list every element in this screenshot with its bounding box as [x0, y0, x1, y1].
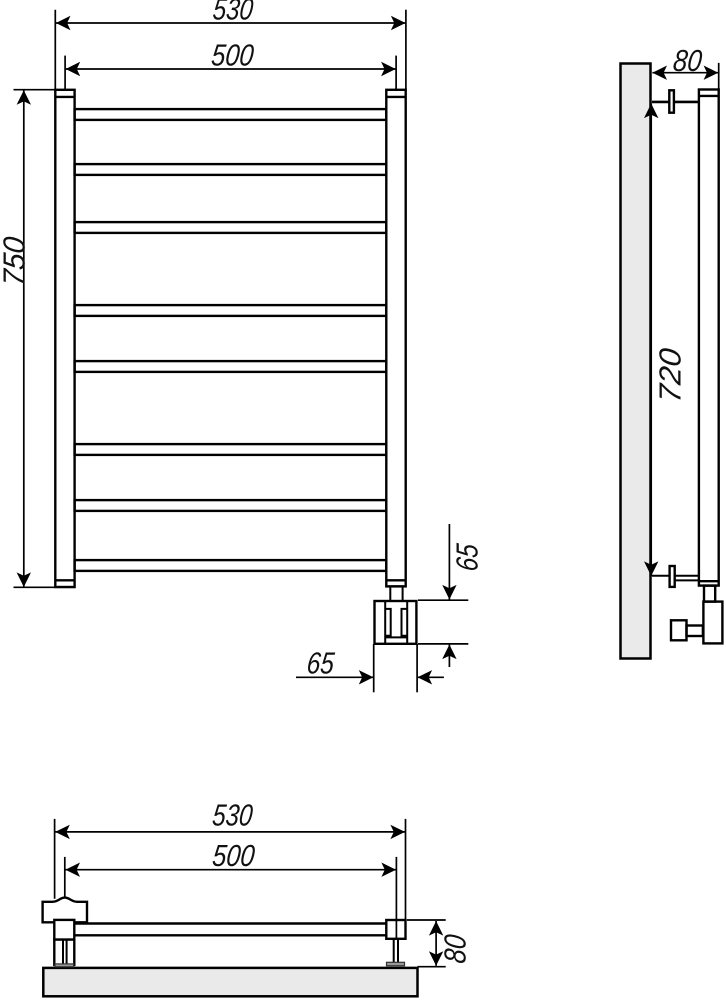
svg-text:80: 80: [438, 933, 472, 965]
svg-text:65: 65: [450, 541, 484, 572]
svg-text:530: 530: [211, 799, 255, 833]
svg-text:720: 720: [653, 347, 687, 405]
svg-text:80: 80: [672, 44, 704, 78]
svg-text:65: 65: [305, 647, 336, 681]
svg-text:750: 750: [0, 235, 31, 288]
svg-text:500: 500: [210, 38, 256, 72]
svg-text:500: 500: [211, 839, 257, 873]
svg-text:530: 530: [211, 0, 255, 26]
